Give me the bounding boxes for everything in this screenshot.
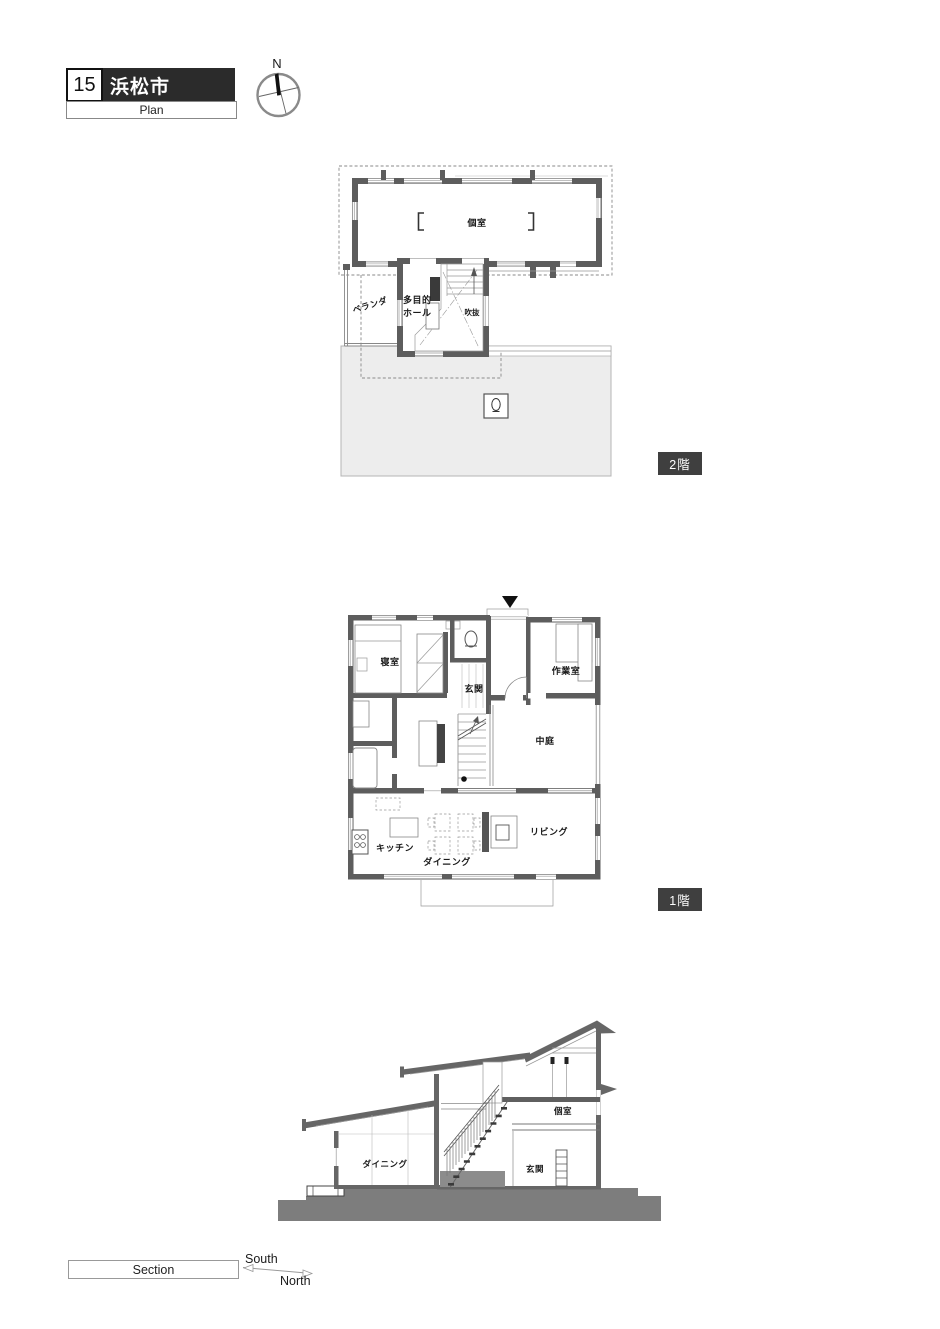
section-dining-wing: ダイニング [302, 1101, 440, 1190]
kitchen-label: キッチン [376, 843, 414, 853]
bathtub [353, 748, 377, 788]
storage [419, 721, 437, 766]
room-workroom: 作業室 [552, 624, 592, 681]
courtyard-fence [596, 705, 600, 784]
section-sheet-box: Section [68, 1260, 239, 1279]
section-dining-label: ダイニング [362, 1159, 407, 1169]
room-hall: 吹抜 多目的 ホール [397, 258, 489, 357]
toilet-icon [465, 631, 477, 647]
porch [487, 609, 528, 616]
living-label: リビング [530, 826, 568, 837]
section-private-label: 個室 [553, 1106, 572, 1116]
room-courtyard: 中庭 [490, 705, 555, 786]
section-entrance-label: 玄関 [526, 1164, 544, 1174]
void-label: 吹抜 [465, 307, 480, 317]
south-label: South [245, 1252, 278, 1266]
skylight-icon [484, 394, 508, 418]
entrance-marker-icon [502, 596, 518, 608]
section-direction-indicator: South North [238, 1248, 320, 1292]
tv-board [482, 812, 489, 852]
kitchen-island [390, 818, 418, 837]
north-label: North [280, 1274, 311, 1288]
veranda-label: ベランダ [351, 295, 388, 315]
workroom-label: 作業室 [552, 665, 581, 676]
closet [417, 634, 443, 693]
entrance-label: 玄関 [464, 683, 483, 694]
veranda: ベランダ [343, 264, 397, 346]
vanity [353, 701, 369, 727]
floor1-badge: 1階 [658, 888, 702, 911]
floor2-badge: 2階 [658, 452, 702, 475]
deck [421, 880, 553, 906]
dining-label: ダイニング [423, 856, 471, 867]
compass-north-label: N [272, 56, 281, 71]
project-city: 浜松市 [103, 68, 235, 102]
room-dining [428, 814, 480, 854]
sheet-number: 15 [66, 68, 103, 102]
storage-dark [437, 724, 445, 763]
section-drawing: ダイニング 個室 玄関 [270, 1000, 680, 1235]
floor2-plan: ベランダ 個室 [330, 155, 720, 485]
room-bedroom: 寝室 [355, 625, 401, 693]
stairs-1f [458, 714, 486, 786]
courtyard-label: 中庭 [535, 735, 555, 746]
lower-roof-shade [341, 346, 611, 476]
stove-icon [352, 830, 368, 854]
hall-label-2: ホール [403, 308, 432, 318]
title-block: 15 浜松市 Plan [66, 68, 235, 116]
room-entrance: 玄関 [462, 664, 484, 708]
room-kitchen: キッチン [352, 798, 418, 854]
private-room-label: 個室 [466, 217, 486, 228]
floor1-plan: 寝室 玄関 作業室 中庭 [330, 585, 720, 925]
bedroom-label: 寝室 [380, 656, 399, 667]
hall-label-1: 多目的 [403, 294, 432, 305]
compass-icon: N [248, 50, 312, 122]
room-living: リビング [482, 812, 568, 852]
sheet-name: Plan [66, 101, 237, 119]
